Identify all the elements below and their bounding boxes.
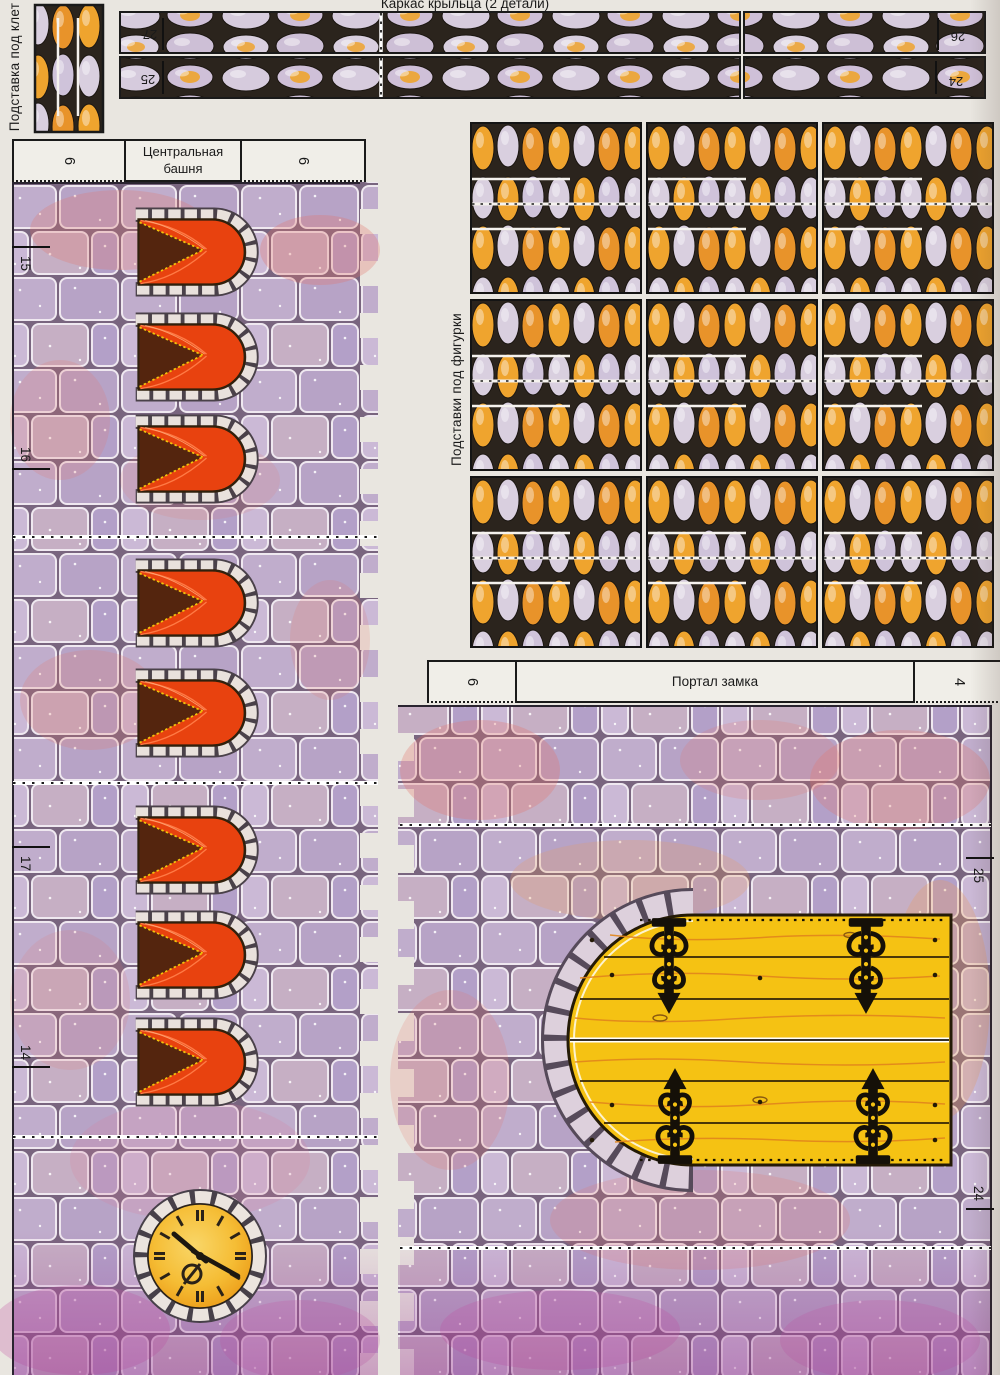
castle-gate-door (556, 903, 951, 1177)
cage-stand-piece (35, 5, 103, 132)
tower-tab-right-number: 6 (295, 156, 311, 164)
tower-title-line1: Центральная (143, 144, 223, 160)
tower-cut-tick-17 (12, 846, 50, 848)
portal-title-box: Портал замка (515, 660, 915, 703)
porch-frame-title: Каркас крыльца (2 детали) (320, 0, 610, 11)
portal-title: Портал замка (672, 674, 758, 689)
tower-cut-tick-16 (12, 468, 50, 470)
tower-glue-tab-right: 6 (240, 139, 366, 182)
strip-number-27: 27 (138, 26, 162, 44)
portal-edge-number-24: 24 (966, 1180, 992, 1206)
strip-number-24: 24 (944, 73, 968, 91)
tower-title-line2: башня (143, 161, 223, 177)
portal-wall (390, 705, 992, 1375)
porch-frame-strips (120, 12, 985, 98)
tower-tab-left-number: 6 (61, 156, 77, 164)
tower-title-box: Центральная башня (124, 139, 242, 182)
portal-glue-tab-right: 4 (913, 660, 1000, 703)
portal-tab-right-number: 4 (951, 677, 967, 685)
tower-cut-tick-14 (12, 1066, 50, 1068)
tower-edge-number-14: 14 (13, 1039, 39, 1065)
tower-crenellation-teeth (358, 182, 378, 1353)
tower-edge-number-15: 15 (13, 250, 39, 276)
portal-glue-tab-left: 6 (427, 660, 517, 703)
figurine-stand-cells (471, 123, 993, 647)
portal-cut-tick-24 (966, 1208, 994, 1210)
tower-cut-tick-15 (12, 246, 50, 248)
portal-tab-left-number: 6 (464, 677, 480, 685)
strip-number-26: 26 (946, 28, 970, 46)
papercraft-sheet: Подставка под клет Каркас крыльца (2 дет… (0, 0, 1000, 1375)
strip-number-25: 25 (136, 71, 160, 89)
tower-clock (141, 1197, 259, 1315)
portal-edge-number-25: 25 (966, 862, 992, 888)
cage-stand-label: Подставка под клет (5, 0, 23, 134)
tower-edge-number-17: 17 (13, 850, 39, 876)
tower-edge-number-16: 16 (13, 441, 39, 467)
tower-wall (0, 182, 380, 1375)
figurine-stands-label: Подставки под фигурки (447, 287, 465, 492)
tower-glue-tab-left: 6 (12, 139, 126, 182)
portal-cut-tick-25 (966, 857, 994, 859)
